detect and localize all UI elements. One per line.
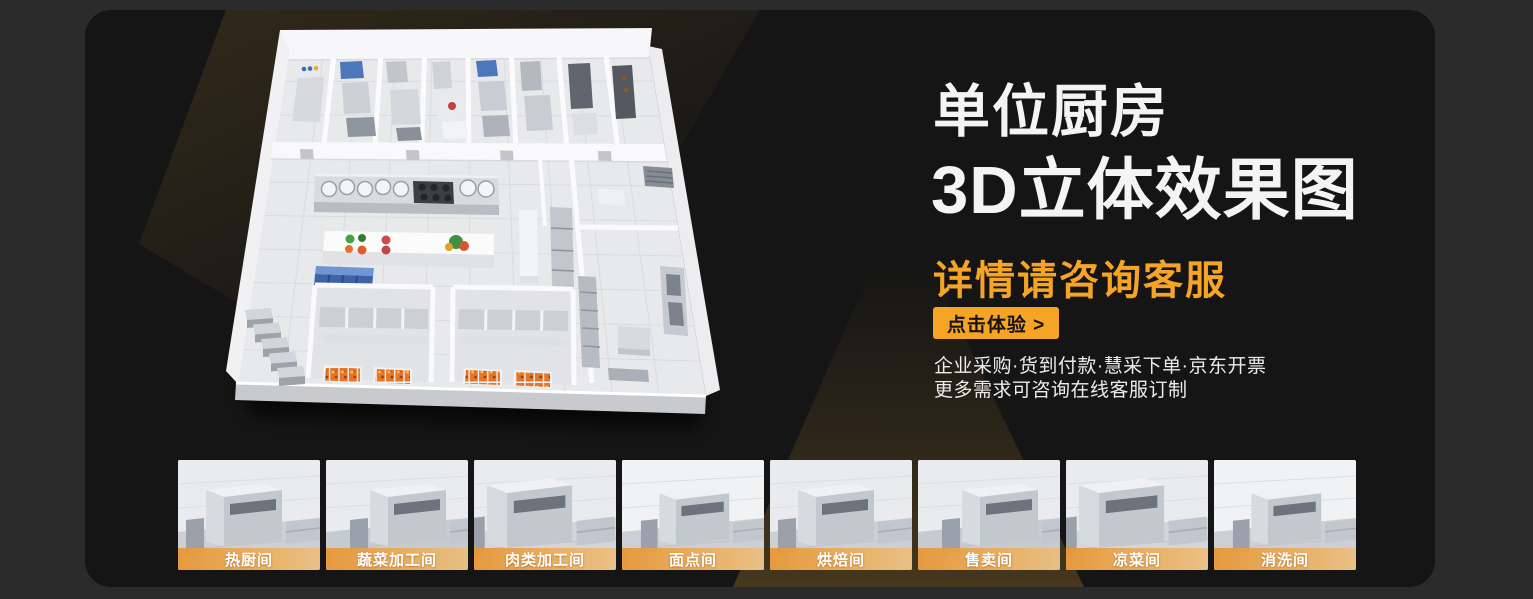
room-label-banner: 蔬菜加工间 — [326, 548, 468, 570]
room-label-banner: 面点间 — [622, 548, 764, 570]
room-thumbnail[interactable]: 面点间 — [622, 460, 764, 570]
room-label-banner: 烘焙间 — [770, 548, 912, 570]
room-thumbnail[interactable]: 热厨间 — [178, 460, 320, 570]
room-thumbnail[interactable]: 烘焙间 — [770, 460, 912, 570]
room-label: 消洗间 — [1261, 549, 1309, 570]
room-label-banner: 凉菜间 — [1066, 548, 1208, 570]
room-label: 烘焙间 — [817, 549, 865, 570]
room-thumbnail[interactable]: 消洗间 — [1214, 460, 1356, 570]
banner-panel: 单位厨房 3D立体效果图 详情请咨询客服 点击体验 > 企业采购·货到付款·慧采… — [85, 10, 1435, 587]
room-thumbnails-row: 热厨间 蔬菜加工间 — [178, 460, 1356, 570]
room-label: 热厨间 — [225, 549, 273, 570]
room-label: 凉菜间 — [1113, 549, 1161, 570]
hero-info-line1: 企业采购·货到付款·慧采下单·京东开票 — [934, 351, 1266, 378]
hero-subtitle: 详情请咨询客服 — [933, 248, 1227, 306]
room-thumbnail[interactable]: 蔬菜加工间 — [326, 460, 468, 570]
room-label: 蔬菜加工间 — [357, 549, 437, 570]
hero-info-line2: 更多需求可咨询在线客服订制 — [934, 375, 1188, 402]
cta-button[interactable]: 点击体验 > — [933, 307, 1059, 339]
room-label-banner: 售卖间 — [918, 548, 1060, 570]
room-thumbnail[interactable]: 售卖间 — [918, 460, 1060, 570]
room-thumbnail[interactable]: 肉类加工间 — [474, 460, 616, 570]
room-label-banner: 消洗间 — [1214, 548, 1356, 570]
room-label-banner: 热厨间 — [178, 548, 320, 570]
hero-title-line2: 3D立体效果图 — [931, 136, 1359, 233]
banner-canvas: 单位厨房 3D立体效果图 详情请咨询客服 点击体验 > 企业采购·货到付款·慧采… — [0, 0, 1533, 599]
room-label-banner: 肉类加工间 — [474, 548, 616, 570]
room-label: 肉类加工间 — [505, 549, 585, 570]
room-label: 售卖间 — [965, 549, 1013, 570]
room-thumbnail[interactable]: 凉菜间 — [1066, 460, 1208, 570]
floorplan-render — [228, 38, 728, 438]
room-label: 面点间 — [669, 549, 717, 570]
kitchen-floorplan-3d — [228, 38, 728, 438]
